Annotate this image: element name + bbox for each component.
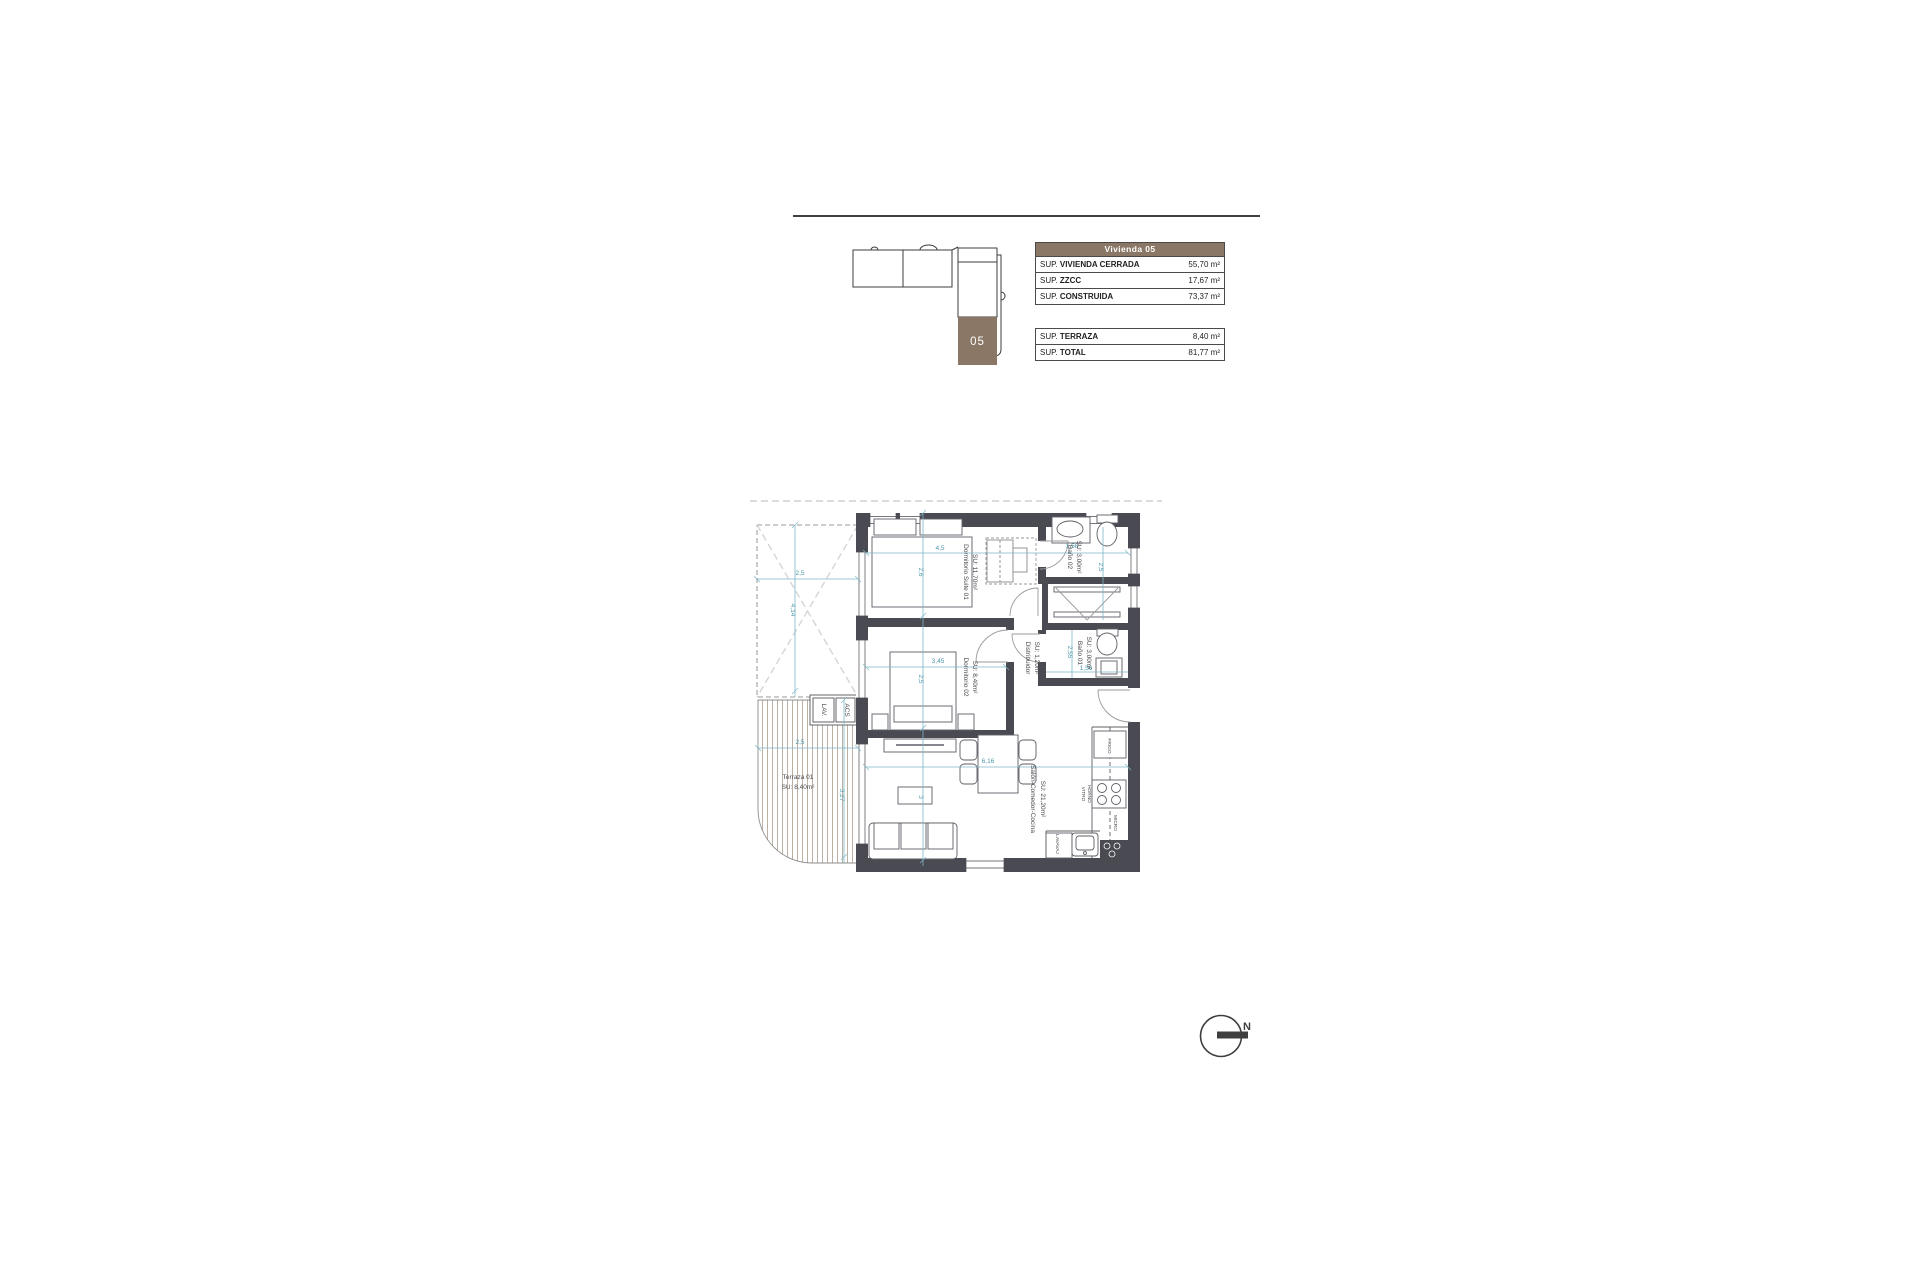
furniture-bano01 <box>1096 629 1122 677</box>
room-distribuidor-area: SU: 1,20m² <box>1033 642 1040 676</box>
surface-table-main: Vivienda 05 SUP. VIVIENDA CERRADA 55,70 … <box>1035 242 1225 305</box>
unit-locator-diagram: 05 <box>845 240 1010 375</box>
wardrobe-closet <box>1054 587 1120 620</box>
row-prefix: SUP. <box>1040 276 1058 285</box>
table-row: SUP. VIVIENDA CERRADA 55,70 m² <box>1036 257 1224 273</box>
vitro-label: VITRO <box>1080 787 1086 802</box>
room-dorm02-name: Dormitorio 02 <box>962 657 969 696</box>
lav-label: LAV. <box>820 703 827 716</box>
surface-table-extra: SUP. TERRAZA 8,40 m² SUP. TOTAL 81,77 m² <box>1035 328 1225 361</box>
room-salon-name: Salón-Comedor-Cocina <box>1029 765 1036 833</box>
table-row: SUP. ZZCC 17,67 m² <box>1036 273 1224 289</box>
top-divider-rule <box>793 215 1260 217</box>
frigo-label: FRIGO <box>1106 738 1112 753</box>
room-bano02-name: Baño 02 <box>1066 545 1073 570</box>
room-salon-area: SU: 21,20m² <box>1039 781 1046 818</box>
dim-terraza-h: 3,27 <box>838 789 845 802</box>
dim-dorm2-h: 2,5 <box>917 674 924 683</box>
unit-05-label: 05 <box>970 336 985 348</box>
lavavaj-label: LAVAVAJ <box>1054 834 1060 854</box>
dim-dorm2-w: 3,45 <box>932 658 945 665</box>
row-name: CONSTRUIDA <box>1060 292 1113 301</box>
row-prefix: SUP. <box>1040 348 1058 357</box>
dim-suite-h: 2,6 <box>917 567 924 576</box>
dim-patio-w: 2,5 <box>795 570 804 577</box>
table-header: Vivienda 05 <box>1036 243 1224 257</box>
dim-patio-h: 4,14 <box>789 604 796 617</box>
dim-bano1-h: 2,55 <box>1066 646 1073 659</box>
row-value: 17,67 m² <box>1188 273 1220 288</box>
row-value: 55,70 m² <box>1188 257 1220 272</box>
dim-salon-h: 3 <box>917 795 924 799</box>
row-prefix: SUP. <box>1040 292 1058 301</box>
room-dorm02-area: SU: 8,40m² <box>971 661 978 695</box>
room-bano01-area: SU: 3,00m² <box>1085 637 1092 671</box>
floorplan-drawing: LAV. ACS <box>610 488 1170 888</box>
furniture-salon <box>869 735 1036 859</box>
horno-label: HORNO <box>1086 785 1092 803</box>
dim-terraza-w: 2,5 <box>795 739 804 746</box>
table-row: SUP. TOTAL 81,77 m² <box>1036 345 1224 360</box>
furniture-suite <box>872 519 1036 607</box>
room-terraza-area: SU: 8,40m² <box>782 784 816 791</box>
room-bano01-name: Baño 01 <box>1076 641 1083 666</box>
row-name: ZZCC <box>1060 276 1081 285</box>
room-bano02-area: SU: 3,00m² <box>1075 541 1082 575</box>
north-compass: N <box>1190 1005 1260 1065</box>
dim-salon-w: 6,16 <box>982 758 995 765</box>
row-name: TOTAL <box>1060 348 1086 357</box>
table-row: SUP. CONSTRUIDA 73,37 m² <box>1036 289 1224 304</box>
table-row: SUP. TERRAZA 8,40 m² <box>1036 329 1224 345</box>
north-label: N <box>1243 1021 1251 1033</box>
row-value: 73,37 m² <box>1188 289 1220 304</box>
room-terraza-name: Terraza 01 <box>783 774 814 781</box>
row-name: TERRAZA <box>1060 332 1098 341</box>
dim-bano2-h: 2,5 <box>1097 562 1104 571</box>
row-name: VIVIENDA CERRADA <box>1060 260 1140 269</box>
row-prefix: SUP. <box>1040 260 1058 269</box>
room-suite-area: SU: 11,70m² <box>971 554 978 591</box>
micro-label: MICRO <box>1112 815 1118 831</box>
row-value: 81,77 m² <box>1188 345 1220 360</box>
patio-void <box>757 525 858 697</box>
row-prefix: SUP. <box>1040 332 1058 341</box>
room-suite-name: Dormitorio Suite 01 <box>962 544 969 600</box>
room-distribuidor-name: Distribuidor <box>1024 642 1031 676</box>
dim-suite-w: 4,5 <box>935 545 944 552</box>
plan-sheet: 05 Vivienda 05 SUP. VIVIENDA CERRADA 55,… <box>0 0 1920 1280</box>
row-value: 8,40 m² <box>1193 329 1220 344</box>
